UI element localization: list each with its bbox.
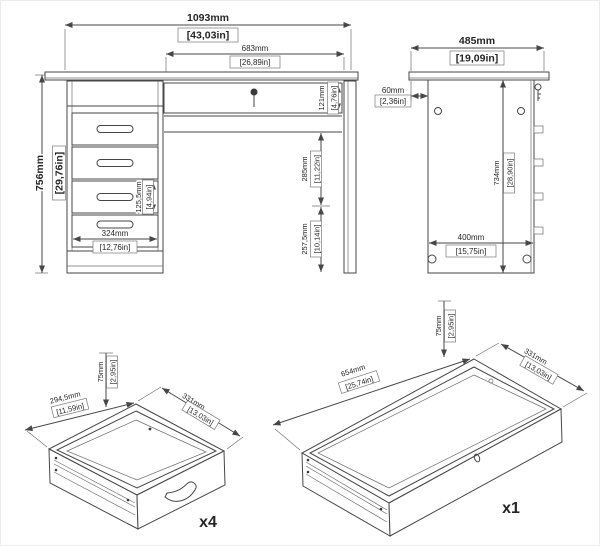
dim-label-in: [28,90in] — [506, 159, 515, 188]
dim-overall-width: 1093mm [43,03in] — [65, 12, 351, 70]
dim-label-mm: 485mm — [459, 35, 495, 47]
dim-label-in-group: [4,94in] — [143, 180, 154, 214]
dim-label-mm: 257,5mm — [300, 223, 309, 254]
extension-line — [476, 343, 499, 356]
drawer-handle — [97, 221, 133, 228]
dim-top-drawer-height: 121mm [4,76in] — [317, 82, 339, 114]
dim-label-in-group: [29,76in] — [53, 146, 66, 200]
dim-label-mm: 756mm — [34, 155, 46, 191]
dim-label-in: [4,94in] — [145, 185, 154, 210]
extension-line — [138, 387, 161, 401]
rail-screw — [307, 459, 310, 462]
dim-label-mm: 1093mm — [187, 12, 229, 24]
extension-line — [563, 393, 587, 407]
desktop-slab — [45, 72, 358, 80]
dim-label-mm: 324mm — [102, 229, 129, 238]
dim-label-mm: 125,5mm — [134, 181, 143, 212]
dim-label-mm: 121mm — [317, 85, 326, 110]
quantity-label: x1 — [502, 500, 520, 517]
large-drawer-view: 75mm [2,95in] 654mm [25,74in] 331mm [13,… — [273, 301, 587, 536]
dim-label-mm: 60mm — [382, 86, 405, 95]
drawer-slide-tab — [534, 126, 543, 133]
rail-screw — [55, 469, 58, 472]
dim-label-in: [2,36in] — [380, 97, 406, 106]
drawer-handle — [97, 126, 133, 133]
drawer-slide-tab — [534, 159, 543, 166]
rail-screw — [55, 457, 58, 460]
pencil-drawer — [164, 83, 342, 113]
dim-ld-height: 75mm [2,95in] — [434, 301, 456, 357]
dim-label-in: [29,76in] — [54, 152, 66, 195]
pencil-drawer-front — [164, 83, 342, 113]
extension-line — [27, 431, 47, 447]
dim-drawer-front-height: 125,5mm [4,94in] — [134, 180, 154, 214]
dim-label-in: [11,22in] — [313, 155, 322, 183]
key-icon — [535, 84, 541, 101]
dim-label-mm: 75mm — [434, 316, 443, 337]
dim-label-in: [43,03in] — [187, 30, 230, 42]
dim-label-in-group: [11,22in] — [311, 151, 322, 187]
small-drawer-view: 75mm [2,95in] 294,5mm [11,59in] 331mm [1… — [25, 353, 243, 531]
dim-label-mm: 75mm — [96, 362, 105, 383]
drawer-handle — [97, 160, 133, 167]
desk-dimension-diagram: 1093mm [43,03in] 683mm [26,89in] 756mm [… — [0, 0, 600, 546]
dim-label-in: [15,75in] — [456, 247, 487, 256]
dim-label-mm: 285mm — [300, 156, 309, 181]
extension-line — [275, 429, 300, 450]
drawer-handle — [97, 194, 133, 201]
dim-label-in-group: [4,76in] — [328, 82, 339, 114]
rail-screw — [307, 471, 310, 474]
dim-label-mm: 734mm — [492, 160, 501, 185]
dim-label-in: [19,09in] — [456, 53, 499, 65]
dim-label-in: [10,14in] — [313, 225, 322, 254]
drawer-slide-tab — [534, 193, 543, 200]
dim-label-in: [12,76in] — [100, 243, 131, 252]
dim-label-mm: 683mm — [242, 44, 269, 53]
rail-screw — [380, 508, 383, 511]
desktop-slab-side — [409, 72, 549, 80]
side-view: 485mm [19,09in] 60mm [2,36in] — [375, 35, 549, 273]
dim-label-in: [11,59in] — [55, 401, 85, 417]
dim-label-in-group: [28,90in] — [504, 153, 515, 193]
dim-label-in: [26,89in] — [240, 58, 271, 67]
dim-knee-space-lower: 257,5mm [10,14in] — [300, 207, 322, 272]
dim-label-in: [4,76in] — [330, 86, 339, 111]
drawer-slide-tab — [534, 227, 543, 234]
dim-label-mm: 400mm — [458, 233, 485, 242]
dim-top-setback: 60mm [2,36in] — [375, 81, 428, 107]
dim-label-in-group: [2,95in] — [107, 356, 118, 388]
dim-label-in-group: [10,14in] — [311, 221, 322, 257]
extension-line — [227, 437, 243, 449]
dim-sd-height: 75mm [2,95in] — [96, 353, 118, 407]
dim-depth: 485mm [19,09in] — [411, 35, 544, 71]
desk-right-leg — [344, 81, 356, 273]
quantity-label: x4 — [199, 514, 217, 531]
small-drawer-isometric — [49, 404, 225, 529]
front-view: 1093mm [43,03in] 683mm [26,89in] 756mm [… — [34, 12, 358, 273]
dim-knee-space-upper: 285mm [11,22in] — [300, 133, 322, 205]
dim-label-in: [2,95in] — [109, 360, 118, 385]
dim-label-in: [2,95in] — [447, 314, 456, 339]
rail-screw — [127, 499, 130, 502]
floor-screw — [149, 428, 152, 431]
dim-label-in-group: [2,95in] — [445, 310, 456, 342]
keyhole-icon — [251, 89, 258, 96]
dim-overall-height: 756mm [29,76in] — [34, 75, 66, 273]
technical-drawing-canvas: 1093mm [43,03in] 683mm [26,89in] 756mm [… — [1, 1, 600, 546]
